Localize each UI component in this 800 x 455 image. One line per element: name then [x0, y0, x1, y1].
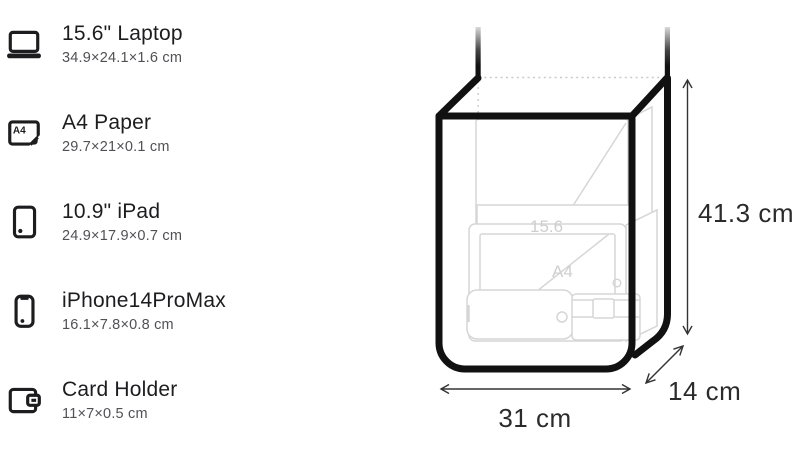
width-dimension-label: 31 cm	[498, 403, 571, 433]
ghost-laptop-label: 15.6	[530, 217, 563, 236]
depth-dimension-label: 14 cm	[668, 376, 741, 406]
height-dimension-label: 41.3 cm	[698, 198, 794, 228]
bag-dimension-diagram: 15.6 A4	[0, 0, 800, 455]
ghost-iphone	[467, 290, 573, 339]
ghost-a4-label: A4	[552, 262, 573, 281]
bag-size-diagram-page: 15.6" Laptop 34.9×24.1×1.6 cm A4 A4 Pape…	[0, 0, 800, 455]
width-dimension-arrow	[441, 385, 630, 394]
height-dimension-arrow	[683, 80, 692, 334]
bag-straps	[476, 27, 671, 79]
